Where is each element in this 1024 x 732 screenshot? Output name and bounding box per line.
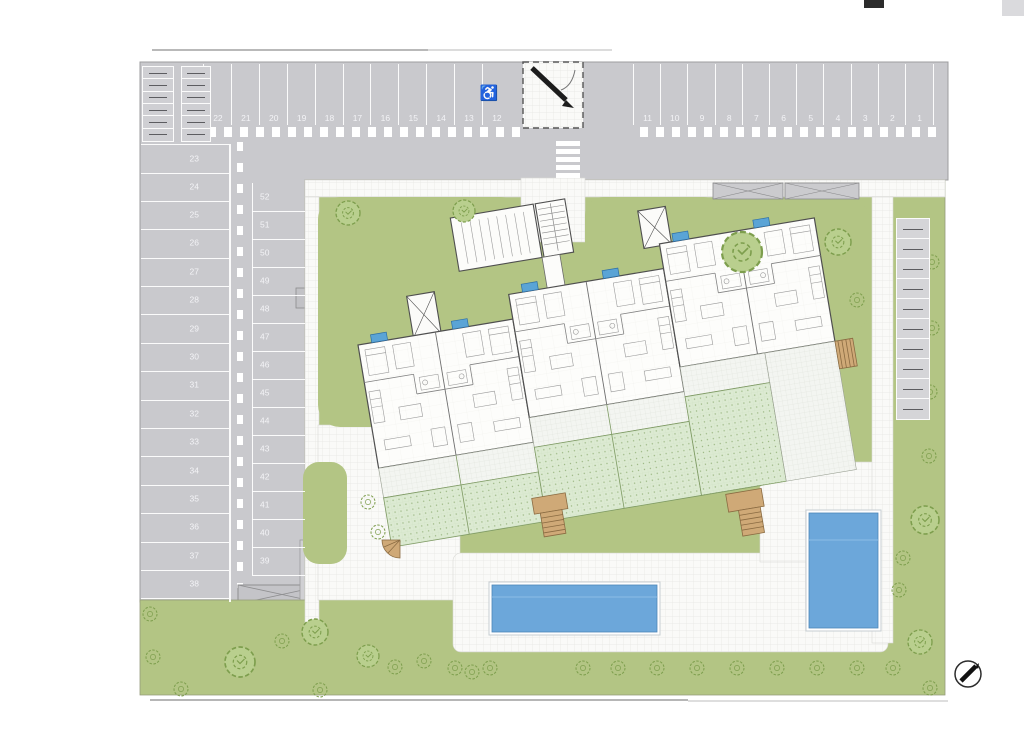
stall-tick-row <box>633 127 940 137</box>
pool-secondary <box>809 513 878 628</box>
sheet-corner-smudge <box>1002 0 1024 16</box>
pool-main <box>492 585 657 632</box>
pergolas <box>713 183 859 199</box>
stall-tick-row <box>203 127 523 137</box>
sheet-edge-mark <box>864 0 884 8</box>
site-plan-sheet: 22212019181716151413121110987654321 2324… <box>0 0 1024 732</box>
private-garden <box>685 383 786 496</box>
site-plan-drawing <box>0 0 1024 732</box>
north-arrow-icon <box>955 661 981 687</box>
